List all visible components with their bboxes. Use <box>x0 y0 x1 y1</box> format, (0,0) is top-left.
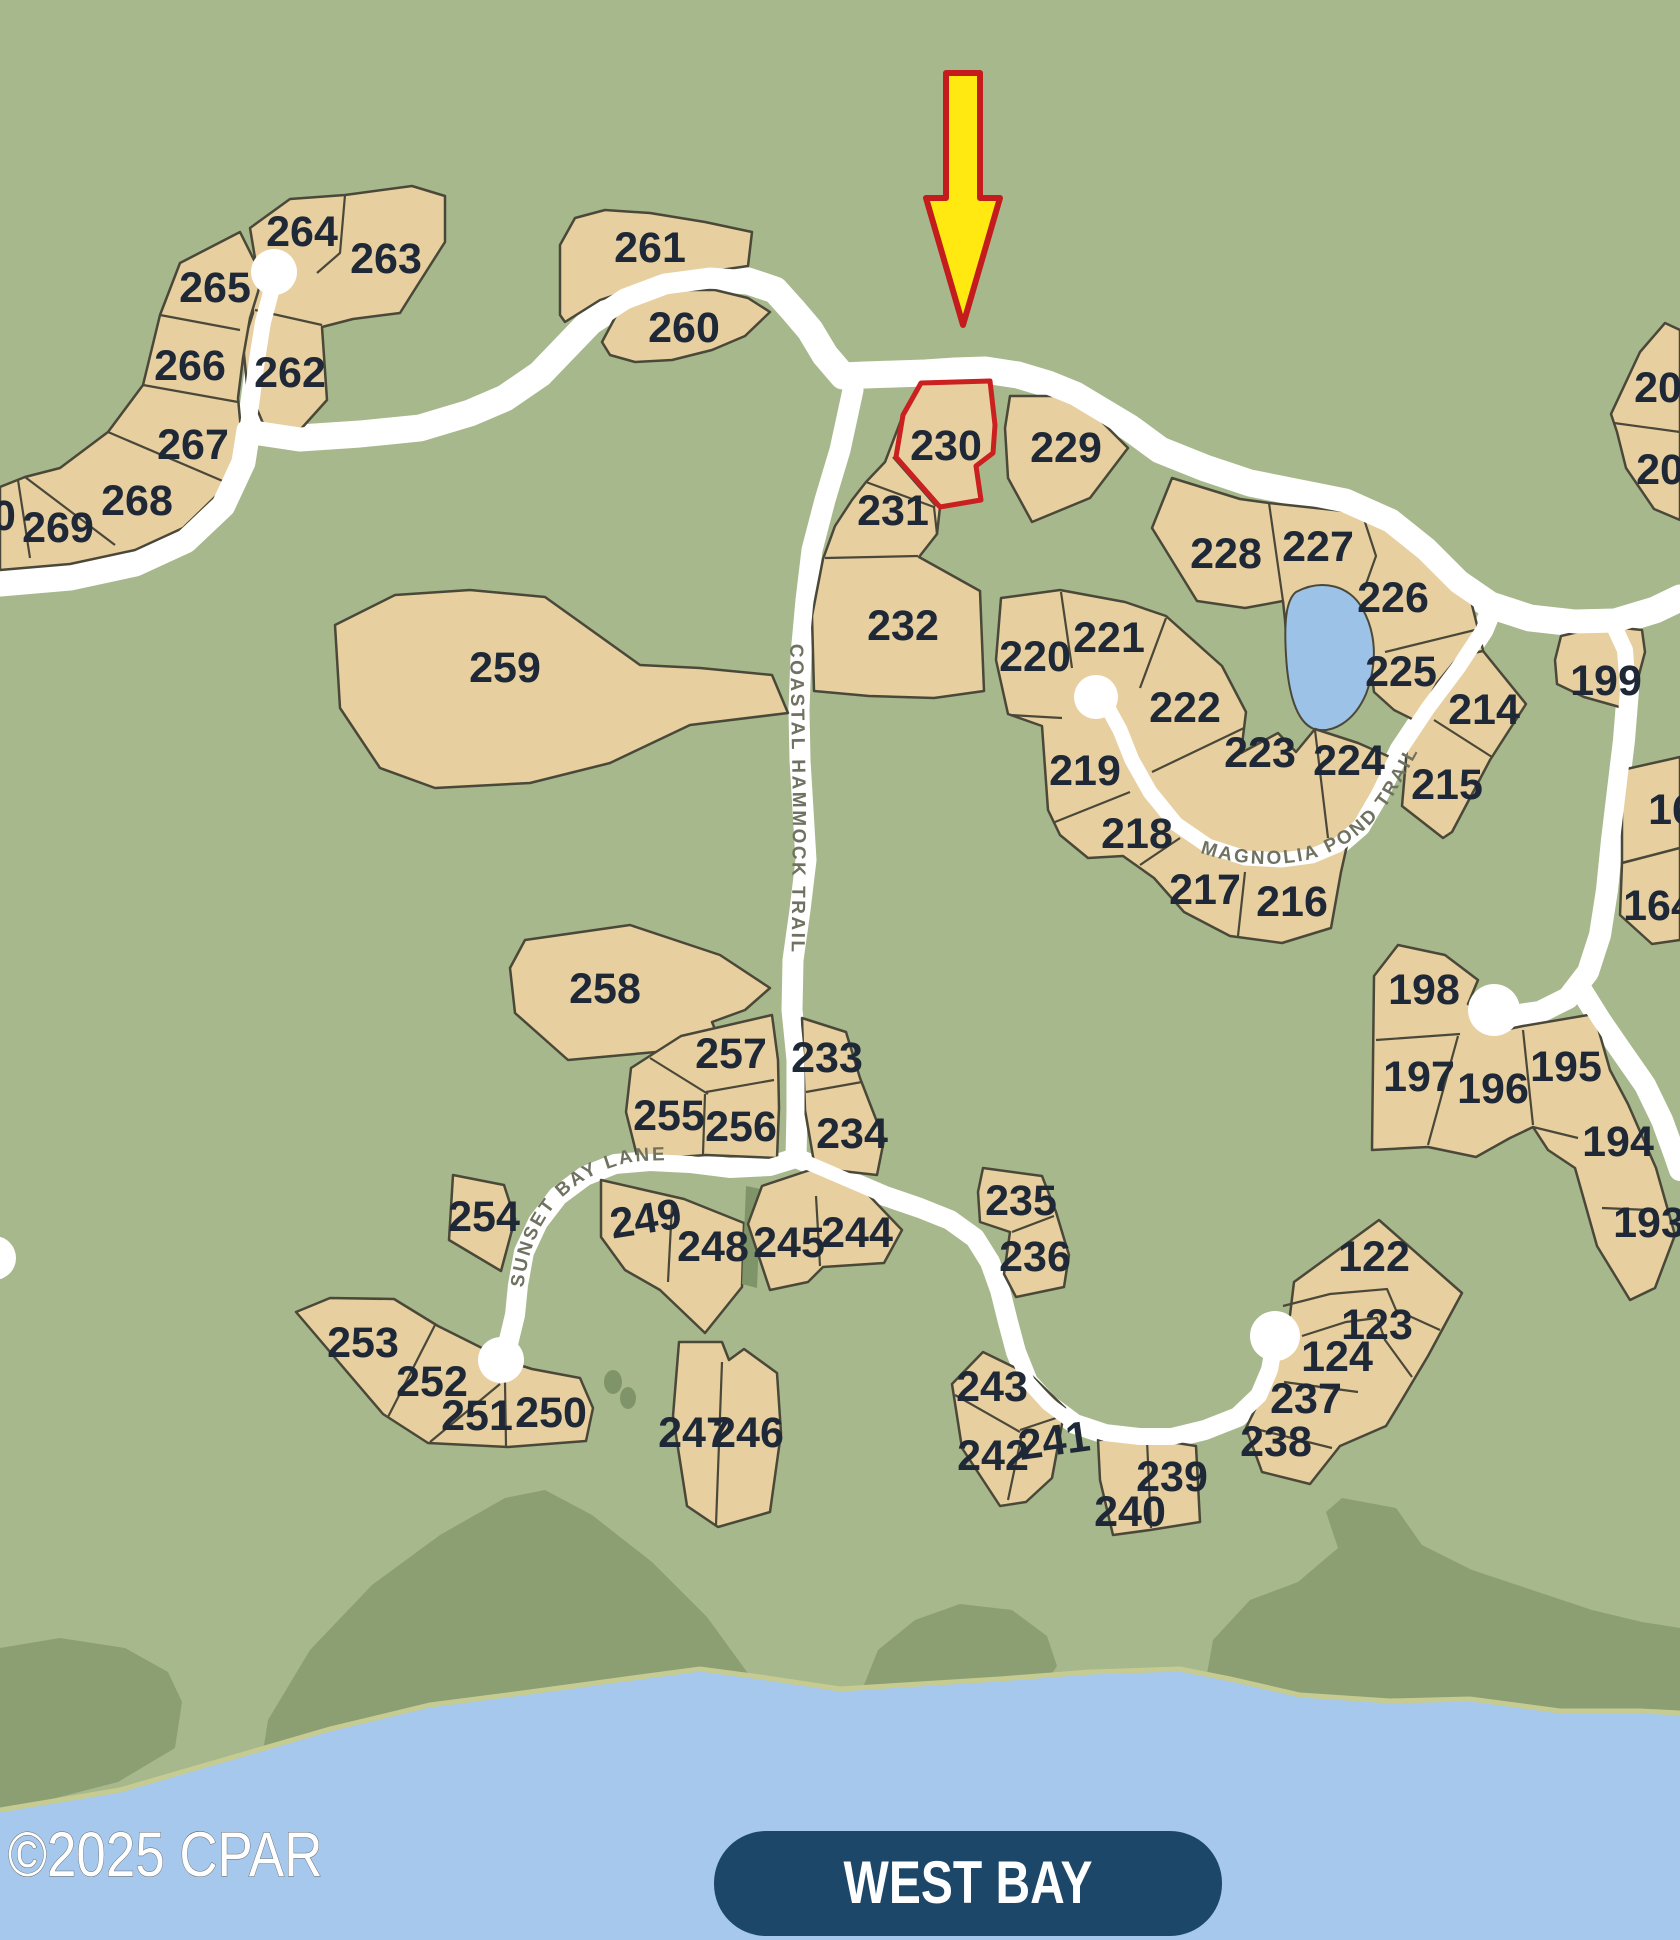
svg-text:198: 198 <box>1388 966 1460 1014</box>
svg-text:COASTAL HAMMOCK TRAIL: COASTAL HAMMOCK TRAIL <box>785 644 809 955</box>
svg-text:WEST BAY: WEST BAY <box>844 1849 1093 1916</box>
svg-text:256: 256 <box>705 1103 777 1151</box>
svg-text:202: 202 <box>1636 446 1680 494</box>
svg-text:257: 257 <box>695 1030 767 1078</box>
svg-text:222: 222 <box>1149 684 1221 732</box>
svg-text:259: 259 <box>469 644 541 692</box>
svg-text:123: 123 <box>1341 1301 1413 1349</box>
svg-text:237: 237 <box>1270 1375 1342 1423</box>
svg-text:230: 230 <box>910 422 982 470</box>
svg-text:233: 233 <box>791 1034 863 1082</box>
svg-text:231: 231 <box>857 487 929 535</box>
svg-text:199: 199 <box>1570 657 1642 705</box>
svg-text:228: 228 <box>1190 530 1262 578</box>
svg-text:261: 261 <box>614 224 686 272</box>
svg-text:238: 238 <box>1240 1418 1312 1466</box>
svg-text:263: 263 <box>350 235 422 283</box>
svg-text:163: 163 <box>1648 786 1680 834</box>
svg-text:214: 214 <box>1448 686 1520 734</box>
svg-text:122: 122 <box>1338 1233 1410 1281</box>
svg-text:269: 269 <box>22 504 94 552</box>
svg-text:267: 267 <box>157 421 229 469</box>
svg-text:266: 266 <box>154 342 226 390</box>
svg-text:©2025 CPAR: ©2025 CPAR <box>8 1820 322 1890</box>
svg-text:265: 265 <box>179 264 251 312</box>
svg-text:216: 216 <box>1256 878 1328 926</box>
svg-text:270: 270 <box>0 492 16 540</box>
svg-text:235: 235 <box>985 1177 1057 1225</box>
svg-text:164: 164 <box>1623 882 1680 930</box>
svg-text:225: 225 <box>1365 648 1437 696</box>
svg-text:226: 226 <box>1357 574 1429 622</box>
svg-text:244: 244 <box>821 1209 893 1257</box>
svg-text:218: 218 <box>1101 810 1173 858</box>
svg-text:215: 215 <box>1411 761 1483 809</box>
svg-text:227: 227 <box>1282 523 1354 571</box>
svg-text:253: 253 <box>327 1319 399 1367</box>
svg-text:246: 246 <box>712 1409 784 1457</box>
svg-text:196: 196 <box>1457 1065 1529 1113</box>
svg-text:220: 220 <box>999 633 1071 681</box>
svg-text:201: 201 <box>1634 364 1680 412</box>
svg-text:224: 224 <box>1313 737 1385 785</box>
svg-text:234: 234 <box>816 1110 888 1158</box>
svg-text:243: 243 <box>956 1363 1028 1411</box>
svg-text:255: 255 <box>633 1092 705 1140</box>
svg-text:241: 241 <box>1015 1412 1093 1470</box>
svg-text:229: 229 <box>1030 424 1102 472</box>
svg-text:221: 221 <box>1073 614 1145 662</box>
svg-text:223: 223 <box>1224 729 1296 777</box>
svg-text:239: 239 <box>1136 1453 1208 1501</box>
svg-text:264: 264 <box>266 208 338 256</box>
svg-text:195: 195 <box>1530 1043 1602 1091</box>
svg-text:258: 258 <box>569 965 641 1013</box>
svg-text:268: 268 <box>101 477 173 525</box>
svg-text:260: 260 <box>648 304 720 352</box>
svg-text:251: 251 <box>441 1392 513 1440</box>
svg-text:217: 217 <box>1169 866 1241 914</box>
svg-text:245: 245 <box>753 1219 825 1267</box>
svg-text:250: 250 <box>515 1389 587 1437</box>
svg-text:194: 194 <box>1582 1118 1654 1166</box>
svg-text:236: 236 <box>999 1233 1071 1281</box>
svg-text:197: 197 <box>1383 1053 1455 1101</box>
svg-text:248: 248 <box>677 1223 749 1271</box>
svg-text:219: 219 <box>1049 747 1121 795</box>
svg-text:262: 262 <box>254 349 326 397</box>
svg-text:232: 232 <box>867 602 939 650</box>
svg-text:193: 193 <box>1613 1199 1680 1247</box>
svg-text:254: 254 <box>448 1193 520 1241</box>
